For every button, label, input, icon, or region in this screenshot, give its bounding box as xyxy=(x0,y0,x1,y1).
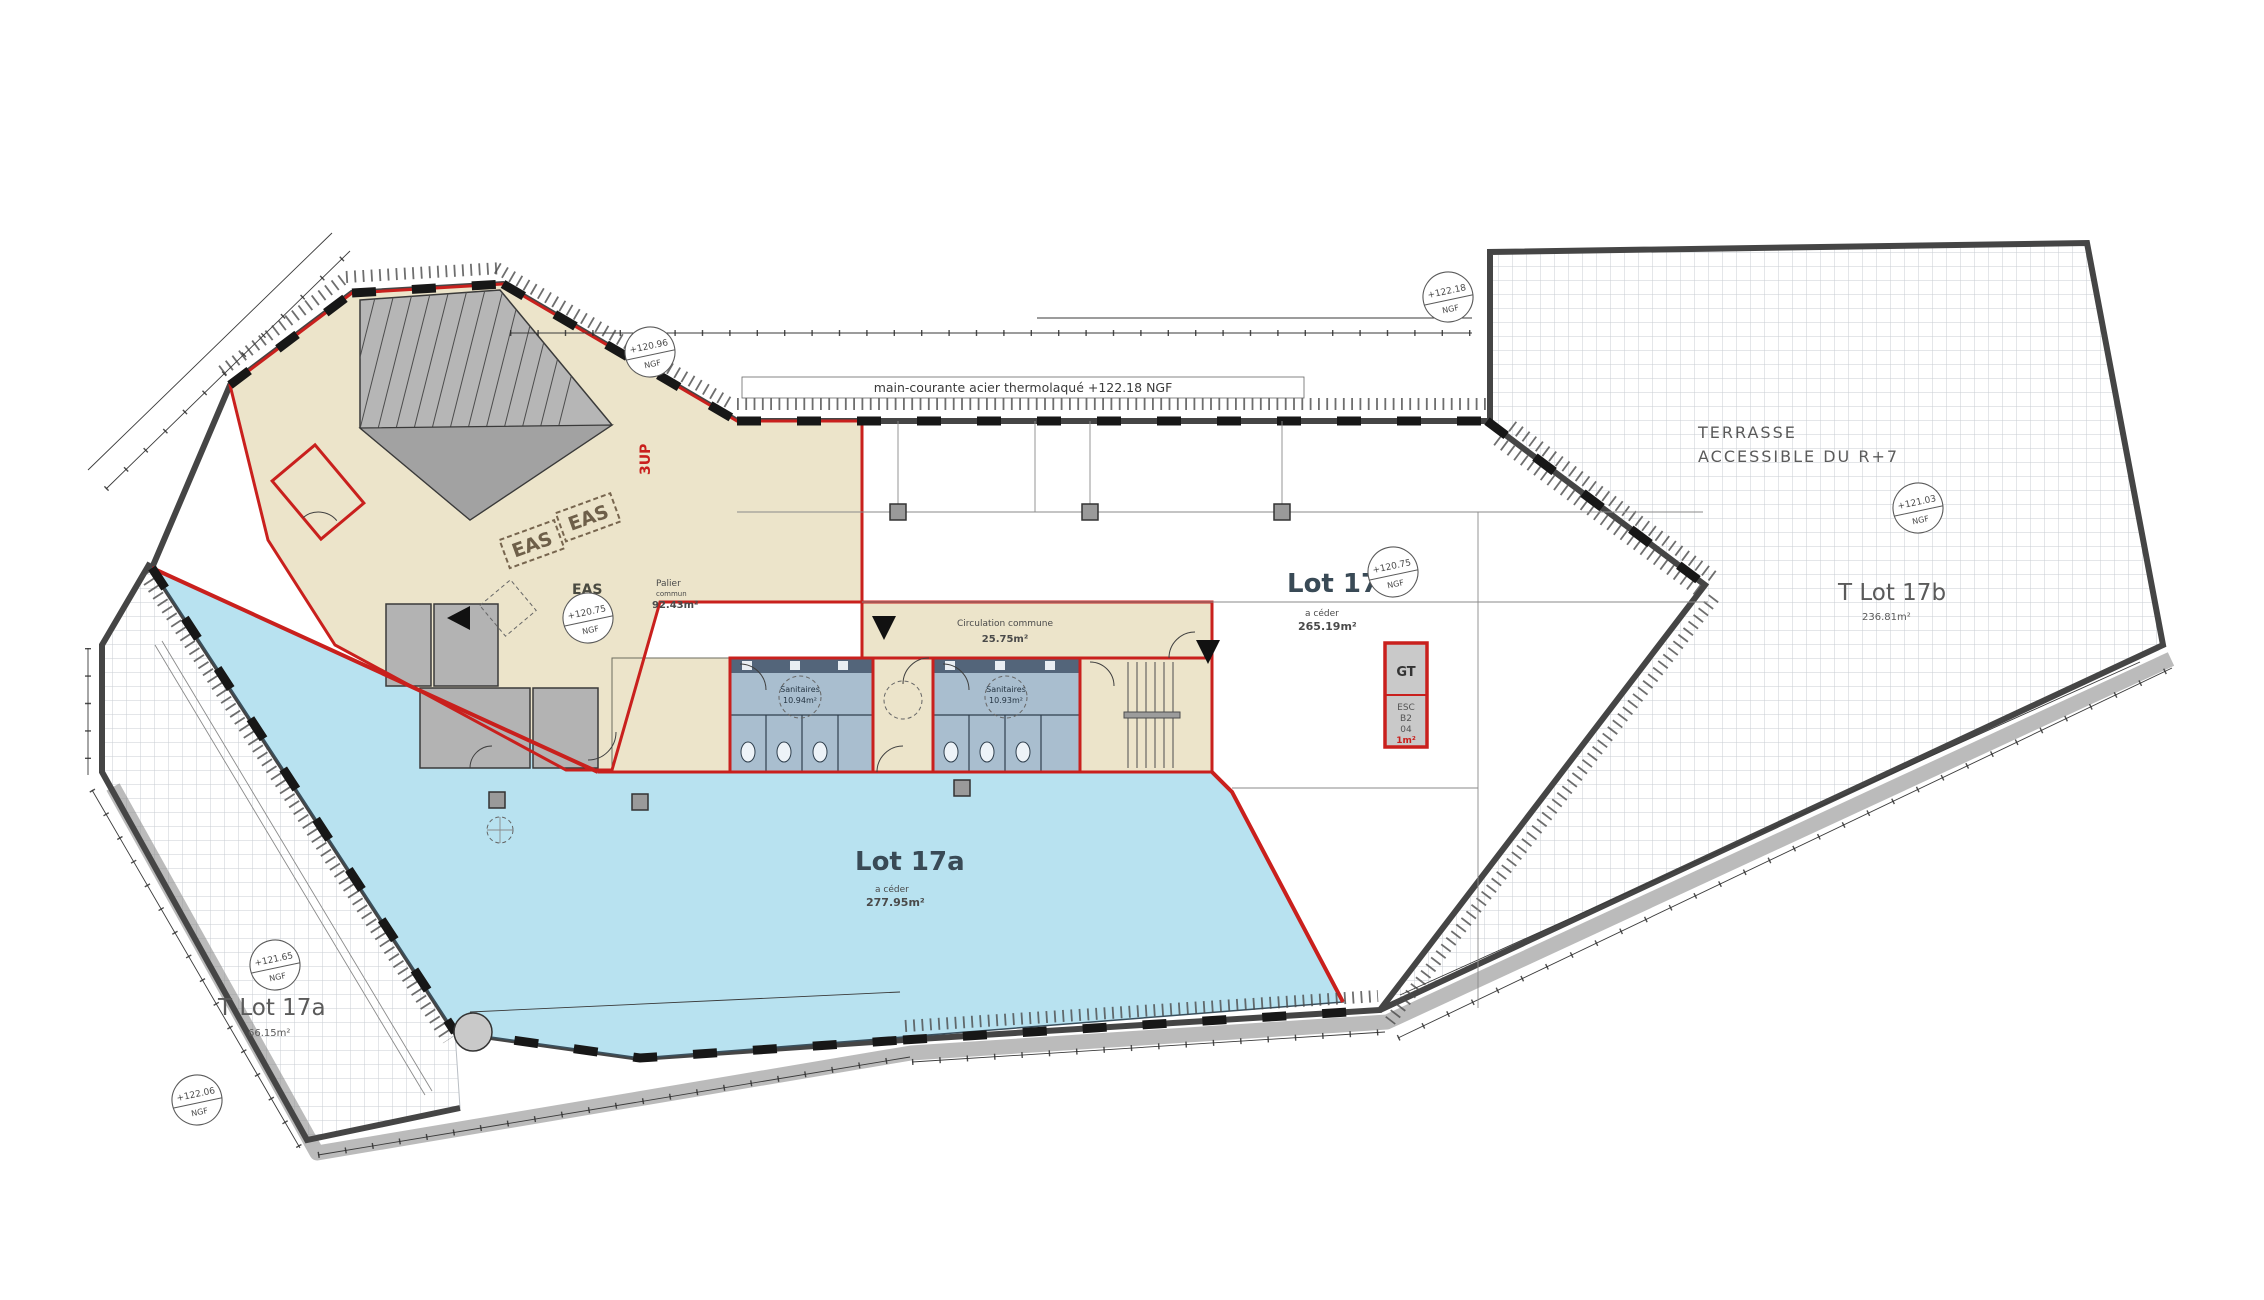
lot17b-area: 265.19m² xyxy=(1298,620,1357,633)
lot17a-name: Lot 17a xyxy=(855,847,965,877)
circulation-name: Circulation commune xyxy=(957,619,1053,629)
gt-label: GT xyxy=(1396,665,1415,680)
gt-line2: B2 xyxy=(1400,714,1412,724)
t-lot17b-area: 236.81m² xyxy=(1862,612,1911,623)
sanitaires-left-block xyxy=(730,658,873,772)
sanitaires-right-block xyxy=(933,658,1080,772)
terrace-right xyxy=(1380,243,2163,1010)
t-lot17b-label: T Lot 17b xyxy=(1837,580,1946,606)
palier-sub: commun xyxy=(656,590,687,598)
gt-duct: GT ESC B2 04 1m² xyxy=(1385,643,1427,747)
stair-direction-label: 3UP xyxy=(638,444,654,475)
lot17b-sub: a céder xyxy=(1305,608,1339,619)
lot17a-sub: a céder xyxy=(875,884,909,895)
gt-line1: ESC xyxy=(1397,703,1415,713)
terrasse-line2: ACCESSIBLE DU R+7 xyxy=(1698,447,1899,466)
circulation-commune-zone xyxy=(862,602,1212,658)
sanitaires-left-area: 10.94m² xyxy=(783,696,817,705)
floor-drain-symbol xyxy=(487,817,513,843)
central-corridor-zone xyxy=(873,658,933,772)
railing-note-text: main-courante acier thermolaqué +122.18 … xyxy=(874,380,1173,395)
t-lot17a-label: T Lot 17a xyxy=(217,995,326,1021)
palier-area: 92.43m² xyxy=(652,600,698,611)
sanitary-lobby-zone xyxy=(612,658,730,772)
lot17a-area: 277.95m² xyxy=(866,896,925,909)
palier-name: Palier xyxy=(656,579,681,589)
floor-plan-sheet: 3UP xyxy=(0,0,2264,1300)
floor-plan-drawing: 3UP xyxy=(0,0,2264,1300)
ngf-stamp-6: +122.06 NGF xyxy=(167,1070,226,1129)
terrasse-line1: TERRASSE xyxy=(1697,423,1797,442)
sanitaires-left-name: Sanitaires xyxy=(780,685,820,694)
circulation-area: 25.75m² xyxy=(982,634,1028,645)
gt-line4: 1m² xyxy=(1396,736,1416,746)
railing-note: main-courante acier thermolaqué +122.18 … xyxy=(742,377,1304,398)
sanitaires-right-name: Sanitaires xyxy=(986,685,1026,694)
t-lot17a-area: 66.15m² xyxy=(248,1028,290,1039)
gt-line3: 04 xyxy=(1400,725,1412,735)
sanitaires-right-area: 10.93m² xyxy=(989,696,1023,705)
